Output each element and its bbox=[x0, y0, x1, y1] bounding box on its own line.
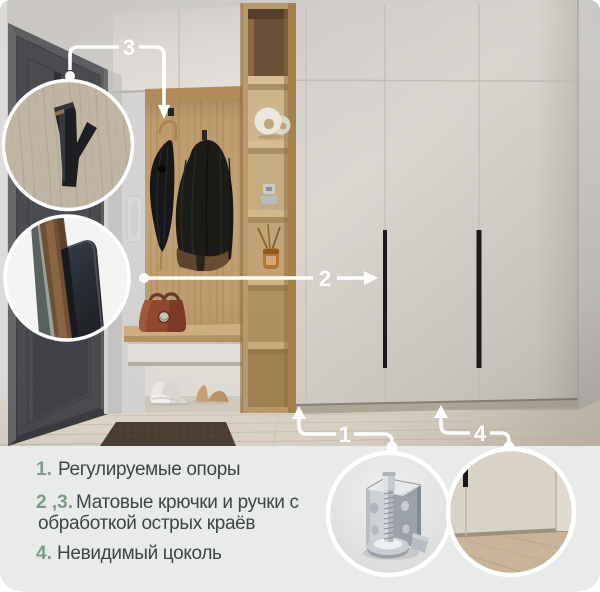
svg-text:1.: 1. bbox=[36, 459, 52, 480]
svg-text:4: 4 bbox=[474, 421, 487, 446]
svg-text:Регулируемые опоры: Регулируемые опоры bbox=[58, 459, 240, 480]
svg-text:обработкой острых краёв: обработкой острых краёв bbox=[38, 513, 255, 534]
svg-text:Невидимый цоколь: Невидимый цоколь bbox=[57, 543, 222, 564]
svg-text:1: 1 bbox=[339, 422, 351, 447]
svg-text:Матовые крючки и ручки с: Матовые крючки и ручки с bbox=[76, 492, 299, 513]
svg-text:4.: 4. bbox=[36, 543, 52, 564]
svg-text:2 ,3.: 2 ,3. bbox=[36, 492, 73, 513]
svg-text:2: 2 bbox=[319, 266, 331, 291]
svg-text:3: 3 bbox=[123, 35, 135, 60]
